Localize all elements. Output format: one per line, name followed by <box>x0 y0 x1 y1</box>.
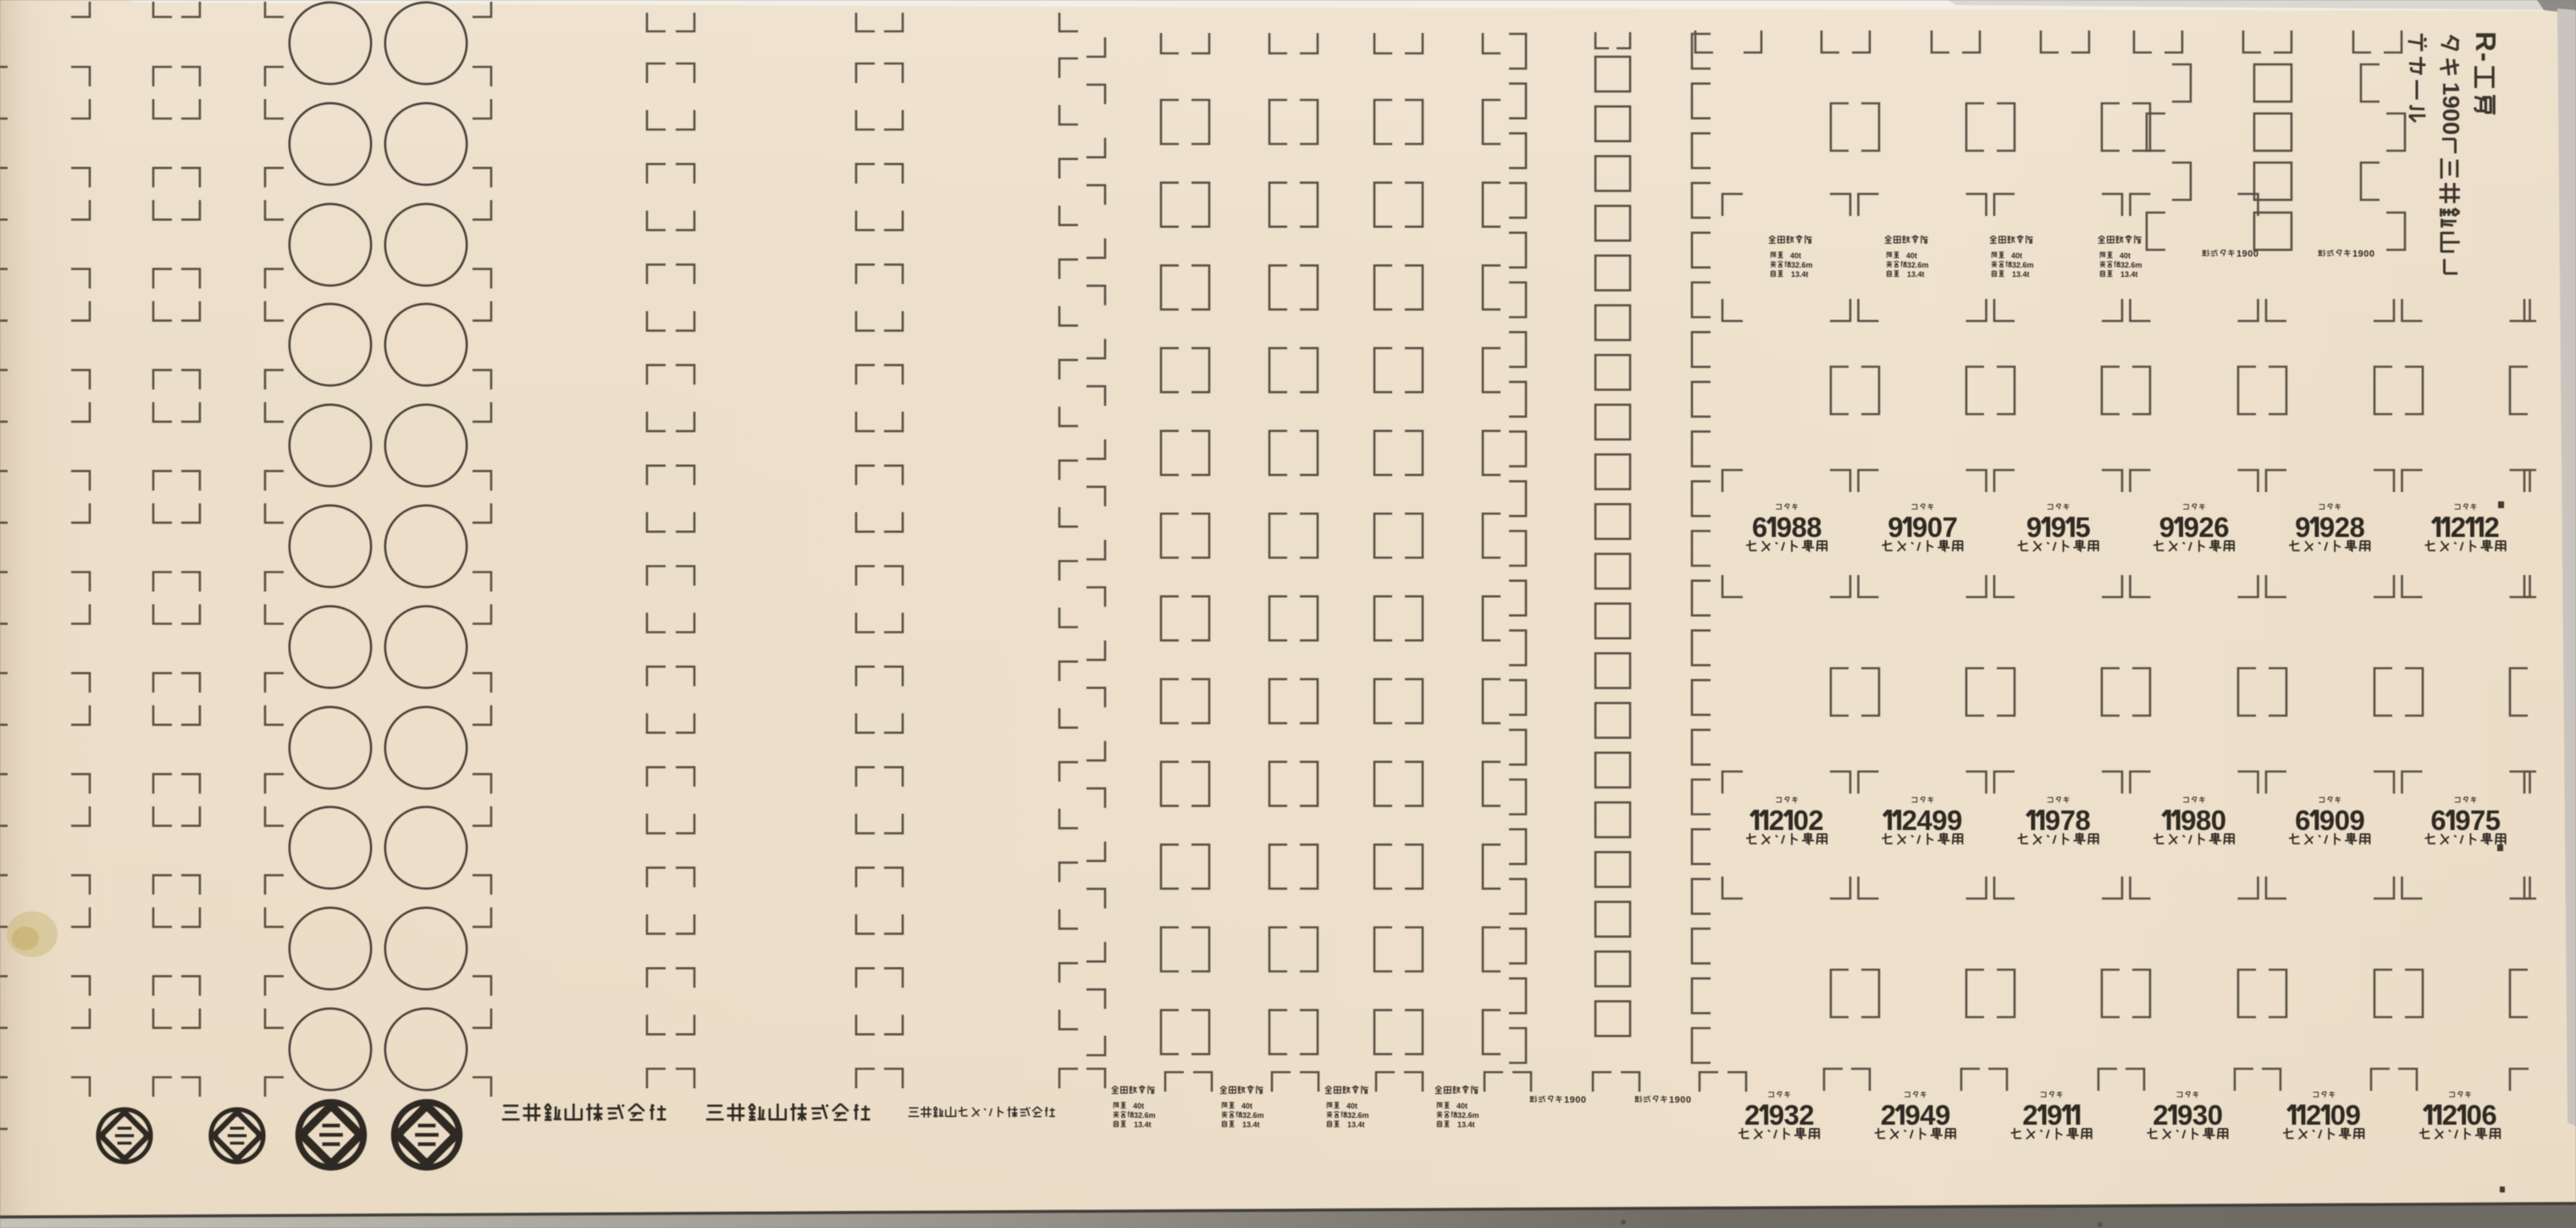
svg-text:0: 0 <box>1927 512 1943 543</box>
svg-text:1900: 1900 <box>1564 1095 1586 1105</box>
svg-text:8: 8 <box>1792 512 1807 543</box>
svg-text:2: 2 <box>1769 805 1784 836</box>
svg-text:4: 4 <box>1920 1099 1936 1131</box>
svg-text:2: 2 <box>1799 1099 1814 1131</box>
svg-text:8: 8 <box>1806 512 1821 543</box>
svg-text:9: 9 <box>1935 1099 1950 1131</box>
svg-text:2: 2 <box>2153 1099 2168 1131</box>
svg-text:9: 9 <box>2455 805 2470 836</box>
svg-text:2: 2 <box>2306 1099 2321 1131</box>
svg-text:9: 9 <box>2319 512 2335 543</box>
svg-text:1900: 1900 <box>2236 249 2258 259</box>
svg-text:6: 6 <box>2481 1099 2496 1131</box>
svg-text:2: 2 <box>2485 512 2500 543</box>
svg-text:0: 0 <box>2467 1099 2482 1131</box>
svg-text:9: 9 <box>2181 805 2196 836</box>
svg-text:8: 8 <box>2076 805 2091 836</box>
svg-text:32.6m: 32.6m <box>1457 1111 1479 1120</box>
svg-text:40t: 40t <box>2011 252 2022 260</box>
svg-text:0: 0 <box>2211 805 2226 836</box>
svg-text:2: 2 <box>1902 805 1917 836</box>
svg-text:2: 2 <box>2198 512 2214 543</box>
svg-text:32.6m: 32.6m <box>2120 261 2142 269</box>
svg-text:R-: R- <box>2470 31 2501 63</box>
svg-text:1900: 1900 <box>2438 82 2464 135</box>
svg-text:9: 9 <box>2184 512 2199 543</box>
svg-text:2: 2 <box>2335 512 2350 543</box>
svg-text:9: 9 <box>2319 805 2335 836</box>
svg-text:6: 6 <box>2295 805 2310 836</box>
svg-text:2: 2 <box>1881 1099 1896 1131</box>
svg-text:5: 5 <box>2076 512 2091 543</box>
svg-text:40t: 40t <box>1133 1102 1144 1110</box>
svg-text:9: 9 <box>2051 512 2066 543</box>
svg-text:40t: 40t <box>1906 252 1917 260</box>
svg-text:2: 2 <box>2451 512 2466 543</box>
svg-text:9: 9 <box>1912 512 1927 543</box>
svg-text:9: 9 <box>1888 512 1903 543</box>
svg-text:9: 9 <box>2159 512 2175 543</box>
svg-text:0: 0 <box>1794 805 1809 836</box>
svg-text:40t: 40t <box>1457 1102 1468 1110</box>
svg-text:4: 4 <box>1917 805 1933 836</box>
svg-text:9: 9 <box>2295 512 2310 543</box>
svg-text:32.6m: 32.6m <box>1242 1111 1264 1120</box>
svg-text:2: 2 <box>2022 1099 2037 1131</box>
svg-text:6: 6 <box>2430 805 2446 836</box>
svg-text:1900: 1900 <box>2352 249 2374 259</box>
svg-text:13.4t: 13.4t <box>1242 1120 1260 1129</box>
svg-text:13.4t: 13.4t <box>1907 270 1925 279</box>
svg-text:40t: 40t <box>1241 1102 1252 1110</box>
svg-text:32.6m: 32.6m <box>1791 261 1813 269</box>
svg-text:32.6m: 32.6m <box>1347 1111 1369 1120</box>
svg-text:2: 2 <box>1744 1099 1760 1131</box>
svg-text:0: 0 <box>2335 805 2350 836</box>
svg-text:6: 6 <box>1752 512 1767 543</box>
svg-text:0: 0 <box>2208 1099 2223 1131</box>
svg-text:9: 9 <box>2047 1099 2062 1131</box>
svg-text:40t: 40t <box>2120 252 2131 260</box>
svg-text:9: 9 <box>1777 512 1792 543</box>
svg-text:3: 3 <box>1784 1099 1799 1131</box>
svg-text:13.4t: 13.4t <box>1791 270 1809 279</box>
svg-text:9: 9 <box>1932 805 1947 836</box>
svg-text:0: 0 <box>2330 1099 2346 1131</box>
svg-text:13.4t: 13.4t <box>1347 1120 1365 1129</box>
svg-text:9: 9 <box>2177 1099 2192 1131</box>
svg-text:9: 9 <box>1947 805 1962 836</box>
svg-text:8: 8 <box>2350 512 2365 543</box>
svg-text:6: 6 <box>2214 512 2229 543</box>
svg-text:7: 7 <box>2060 805 2076 836</box>
svg-text:9: 9 <box>2026 512 2042 543</box>
svg-text:40t: 40t <box>1346 1102 1357 1110</box>
svg-text:9: 9 <box>2346 1099 2361 1131</box>
svg-text:32.6m: 32.6m <box>1907 261 1929 269</box>
svg-text:9: 9 <box>1769 1099 1784 1131</box>
svg-text:32.6m: 32.6m <box>1134 1111 1156 1120</box>
svg-text:13.4t: 13.4t <box>2012 270 2030 279</box>
svg-text:9: 9 <box>1905 1099 1921 1131</box>
svg-text:9: 9 <box>2350 805 2365 836</box>
svg-text:9: 9 <box>2045 805 2060 836</box>
svg-text:2: 2 <box>1808 805 1823 836</box>
svg-text:8: 8 <box>2196 805 2211 836</box>
svg-text:5: 5 <box>2485 805 2501 836</box>
svg-text:3: 3 <box>2192 1099 2208 1131</box>
svg-text:1900: 1900 <box>1669 1095 1691 1105</box>
svg-text:13.4t: 13.4t <box>1457 1120 1475 1129</box>
svg-text:7: 7 <box>2470 805 2485 836</box>
svg-text:7: 7 <box>1943 512 1958 543</box>
svg-text:32.6m: 32.6m <box>2012 261 2034 269</box>
svg-text:40t: 40t <box>1790 252 1801 260</box>
svg-text:13.4t: 13.4t <box>1134 1120 1152 1129</box>
svg-text:2: 2 <box>2442 1099 2457 1131</box>
svg-text:13.4t: 13.4t <box>2120 270 2138 279</box>
